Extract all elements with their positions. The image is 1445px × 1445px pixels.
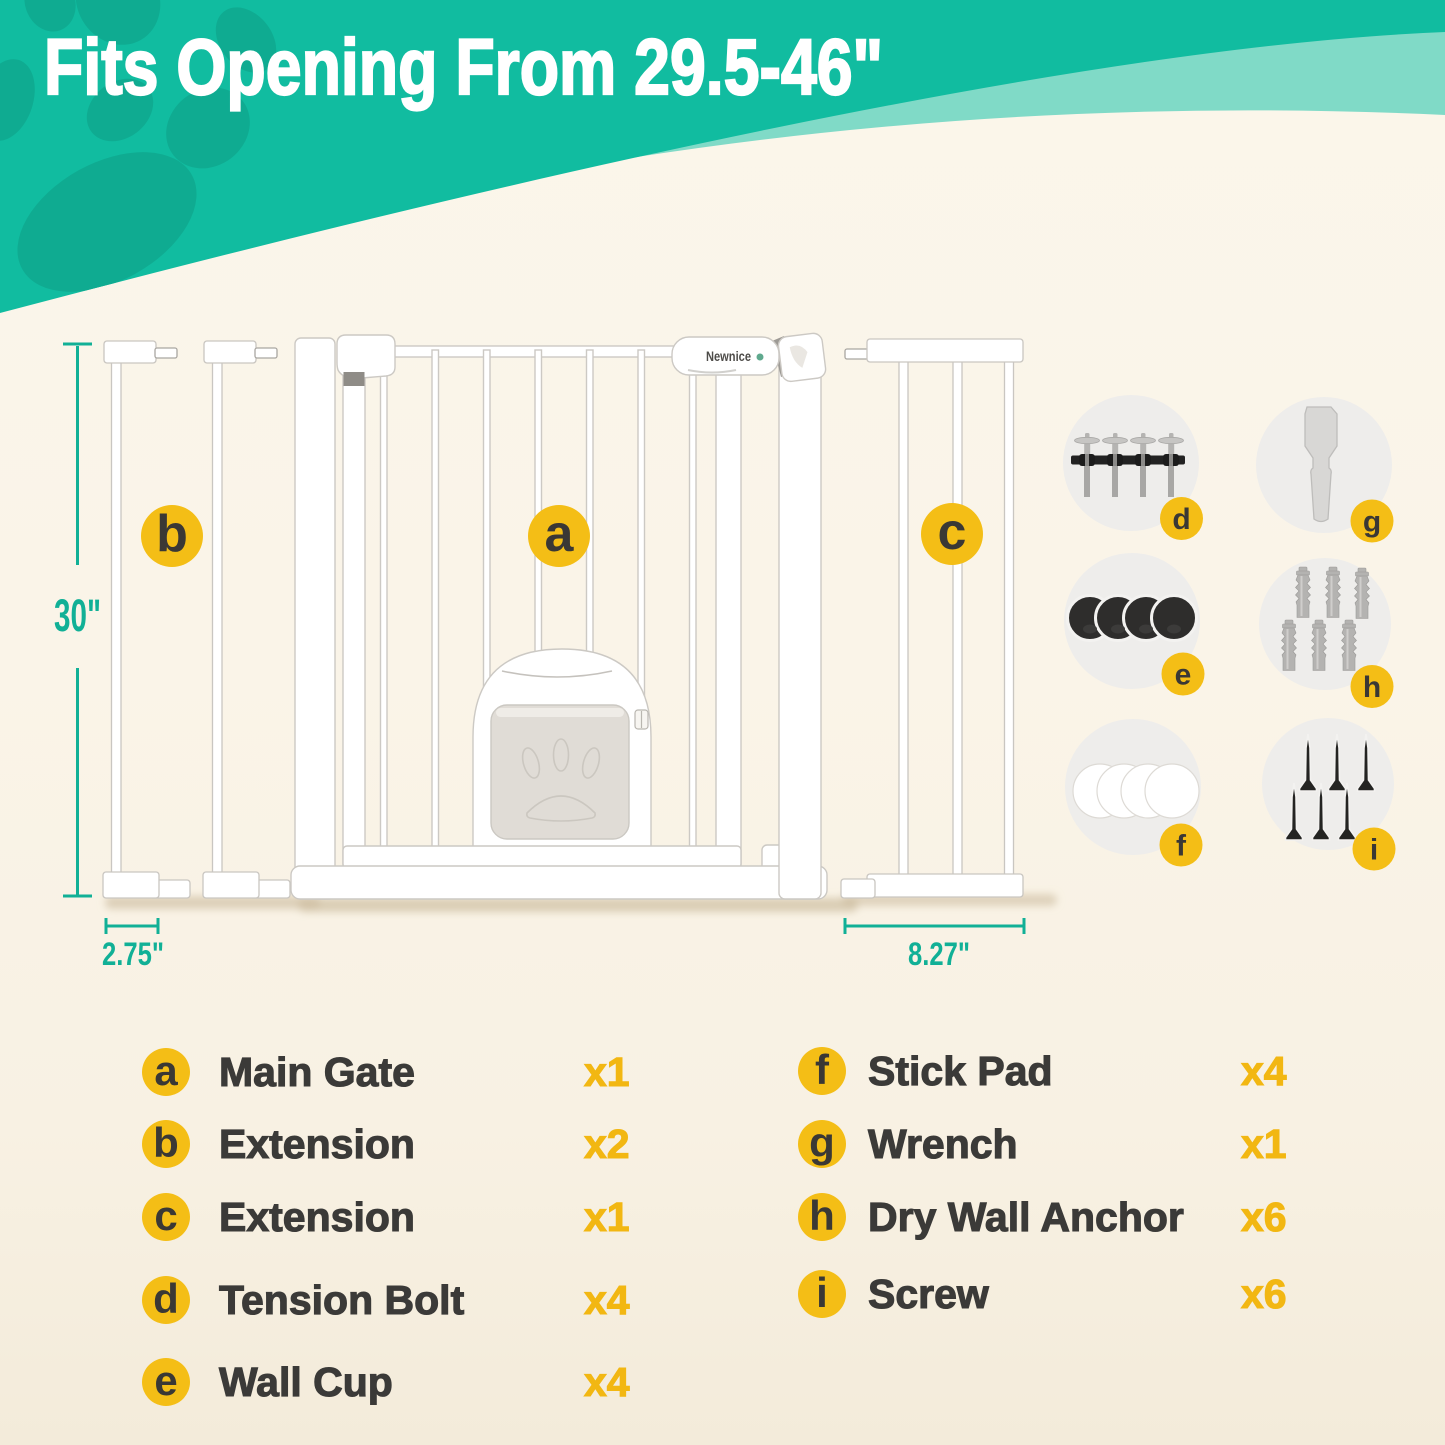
svg-text:2.75": 2.75" [102, 936, 164, 972]
svg-text:e: e [1175, 659, 1192, 692]
svg-text:30": 30" [54, 590, 101, 641]
svg-text:d: d [1172, 503, 1190, 536]
svg-text:a: a [545, 505, 575, 563]
svg-text:b: b [156, 505, 188, 563]
svg-text:f: f [1176, 830, 1187, 863]
svg-text:8.27": 8.27" [908, 936, 970, 972]
svg-text:c: c [938, 503, 967, 561]
svg-text:Newnice: Newnice [706, 349, 751, 364]
svg-text:i: i [1370, 834, 1378, 867]
svg-text:g: g [1363, 506, 1381, 539]
svg-text:h: h [1363, 671, 1381, 704]
